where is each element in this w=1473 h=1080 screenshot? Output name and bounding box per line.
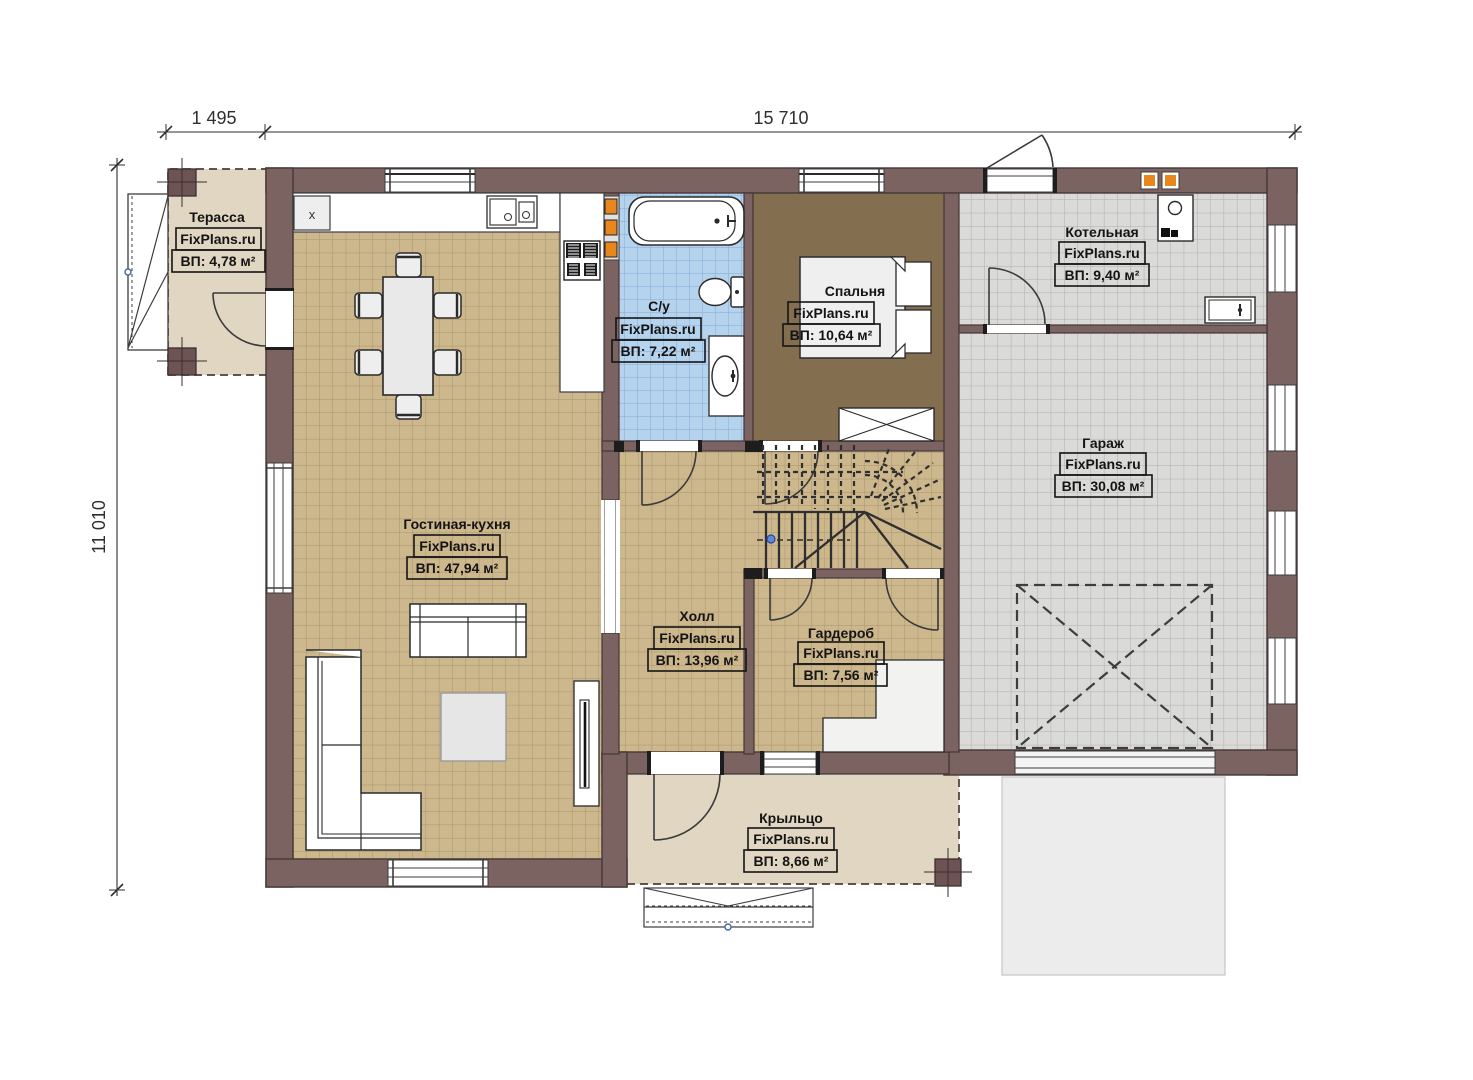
svg-text:FixPlans.ru: FixPlans.ru [620, 321, 695, 337]
svg-text:FixPlans.ru: FixPlans.ru [1064, 245, 1139, 261]
svg-text:FixPlans.ru: FixPlans.ru [803, 645, 878, 661]
svg-text:Крыльцо: Крыльцо [759, 810, 823, 826]
svg-text:Гостиная-кухня: Гостиная-кухня [403, 516, 510, 532]
svg-text:ВП: 9,40 м²: ВП: 9,40 м² [1065, 267, 1140, 283]
svg-text:FixPlans.ru: FixPlans.ru [659, 630, 734, 646]
svg-text:ВП: 10,64 м²: ВП: 10,64 м² [790, 327, 873, 343]
svg-text:FixPlans.ru: FixPlans.ru [793, 305, 868, 321]
svg-text:Холл: Холл [679, 608, 714, 624]
svg-text:1 495: 1 495 [191, 108, 236, 128]
svg-text:Котельная: Котельная [1065, 224, 1138, 240]
svg-text:11 010: 11 010 [89, 500, 109, 554]
svg-text:FixPlans.ru: FixPlans.ru [1065, 456, 1140, 472]
svg-text:ВП: 4,78 м²: ВП: 4,78 м² [181, 253, 256, 269]
svg-text:FixPlans.ru: FixPlans.ru [753, 831, 828, 847]
svg-text:ВП: 7,22 м²: ВП: 7,22 м² [621, 343, 696, 359]
svg-text:x: x [309, 207, 316, 222]
svg-text:FixPlans.ru: FixPlans.ru [180, 231, 255, 247]
svg-text:ВП: 30,08 м²: ВП: 30,08 м² [1062, 478, 1145, 494]
svg-text:ВП: 8,66 м²: ВП: 8,66 м² [754, 853, 829, 869]
svg-text:ВП: 13,96 м²: ВП: 13,96 м² [656, 652, 739, 668]
svg-text:Терасса: Терасса [189, 209, 245, 225]
svg-text:ВП: 7,56 м²: ВП: 7,56 м² [804, 667, 879, 683]
svg-text:С/у: С/у [648, 298, 670, 314]
svg-text:FixPlans.ru: FixPlans.ru [419, 538, 494, 554]
svg-text:Гардероб: Гардероб [808, 625, 875, 641]
svg-text:Спальня: Спальня [825, 283, 885, 299]
svg-text:15 710: 15 710 [753, 108, 808, 128]
svg-text:Гараж: Гараж [1082, 435, 1125, 451]
svg-text:ВП: 47,94 м²: ВП: 47,94 м² [416, 560, 499, 576]
